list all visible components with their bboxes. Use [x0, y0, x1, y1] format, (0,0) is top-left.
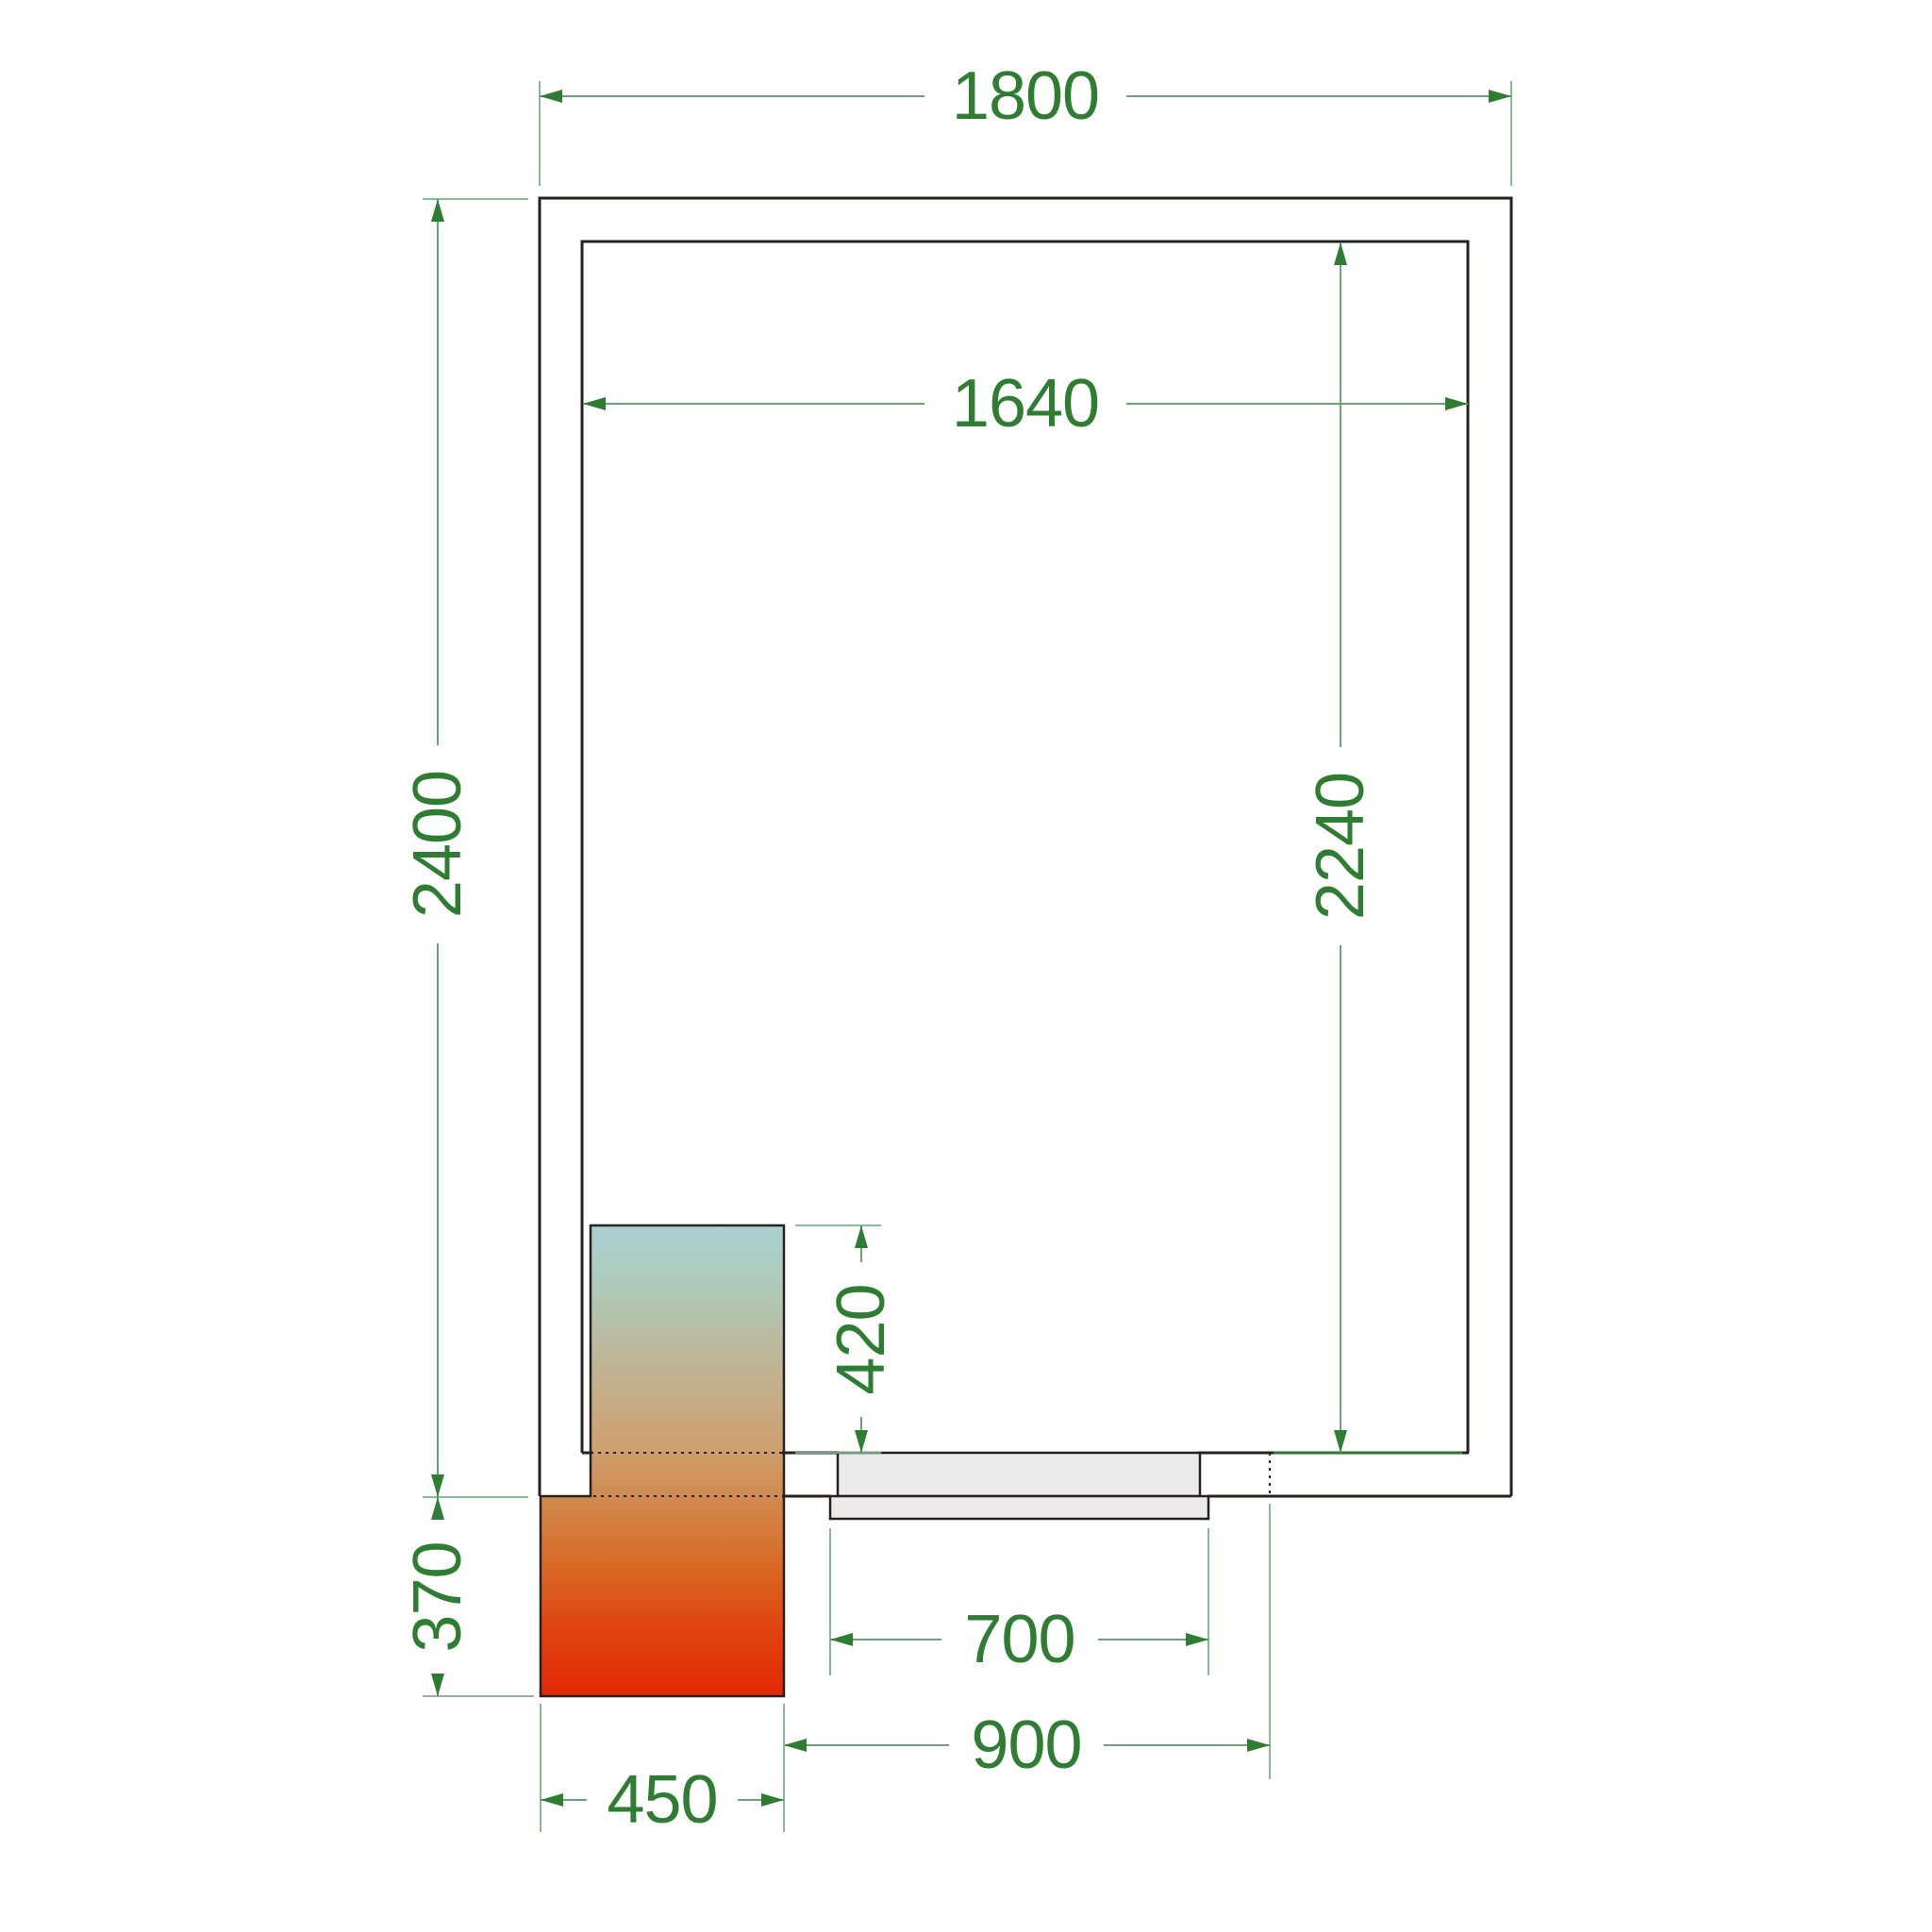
dim-unit-rear-label: 370 — [400, 1541, 475, 1652]
arrow-right-icon — [1247, 1739, 1270, 1752]
dim-inner-width-label: 1640 — [952, 366, 1099, 441]
dim-door-leaf-label: 700 — [964, 1602, 1074, 1677]
arrow-down-icon — [431, 1474, 444, 1497]
arrow-up-icon — [855, 1225, 868, 1248]
dim-door-opening-label: 900 — [971, 1707, 1081, 1783]
arrow-right-icon — [1186, 1633, 1208, 1646]
dimension-unit-width: 450 — [541, 1704, 784, 1838]
arrow-left-icon — [784, 1739, 807, 1752]
floor-plan-drawing: 1800 2400 1640 2240 420 — [0, 0, 1932, 1932]
arrow-left-icon — [583, 397, 606, 410]
dim-unit-width-label: 450 — [607, 1762, 717, 1838]
arrow-right-icon — [1489, 90, 1511, 103]
arrow-up-icon — [1334, 242, 1347, 265]
dim-inner-depth-label: 2240 — [1303, 773, 1378, 920]
arrow-down-icon — [431, 1674, 444, 1696]
arrow-left-icon — [830, 1633, 853, 1646]
door-leaf-inner-slab — [838, 1453, 1200, 1496]
dimension-door-leaf: 700 — [830, 1528, 1208, 1677]
arrow-right-icon — [1445, 397, 1468, 410]
arrow-down-icon — [855, 1430, 868, 1453]
dimension-outer-width: 1800 — [540, 58, 1511, 186]
arrow-up-icon — [431, 1497, 444, 1520]
dimension-outer-depth: 2400 — [400, 199, 528, 1497]
cooling-unit — [541, 1225, 784, 1696]
arrow-up-icon — [431, 199, 444, 222]
floor-plan-page: 1800 2400 1640 2240 420 — [0, 0, 1932, 1932]
arrow-left-icon — [541, 1793, 563, 1807]
dim-unit-length-label: 420 — [824, 1284, 899, 1394]
door-leaf — [830, 1453, 1208, 1519]
dimension-inner-depth: 2240 — [1303, 242, 1378, 1453]
arrow-right-icon — [761, 1793, 784, 1807]
arrow-down-icon — [1334, 1430, 1347, 1453]
dim-outer-width-label: 1800 — [952, 58, 1099, 134]
dimension-unit-length: 420 — [795, 1225, 899, 1453]
door-leaf-outer-slab — [830, 1496, 1208, 1519]
dim-outer-depth-label: 2400 — [400, 771, 475, 918]
dimension-inner-width: 1640 — [583, 366, 1468, 441]
dimension-unit-rear: 370 — [400, 1497, 534, 1696]
arrow-left-icon — [540, 90, 562, 103]
